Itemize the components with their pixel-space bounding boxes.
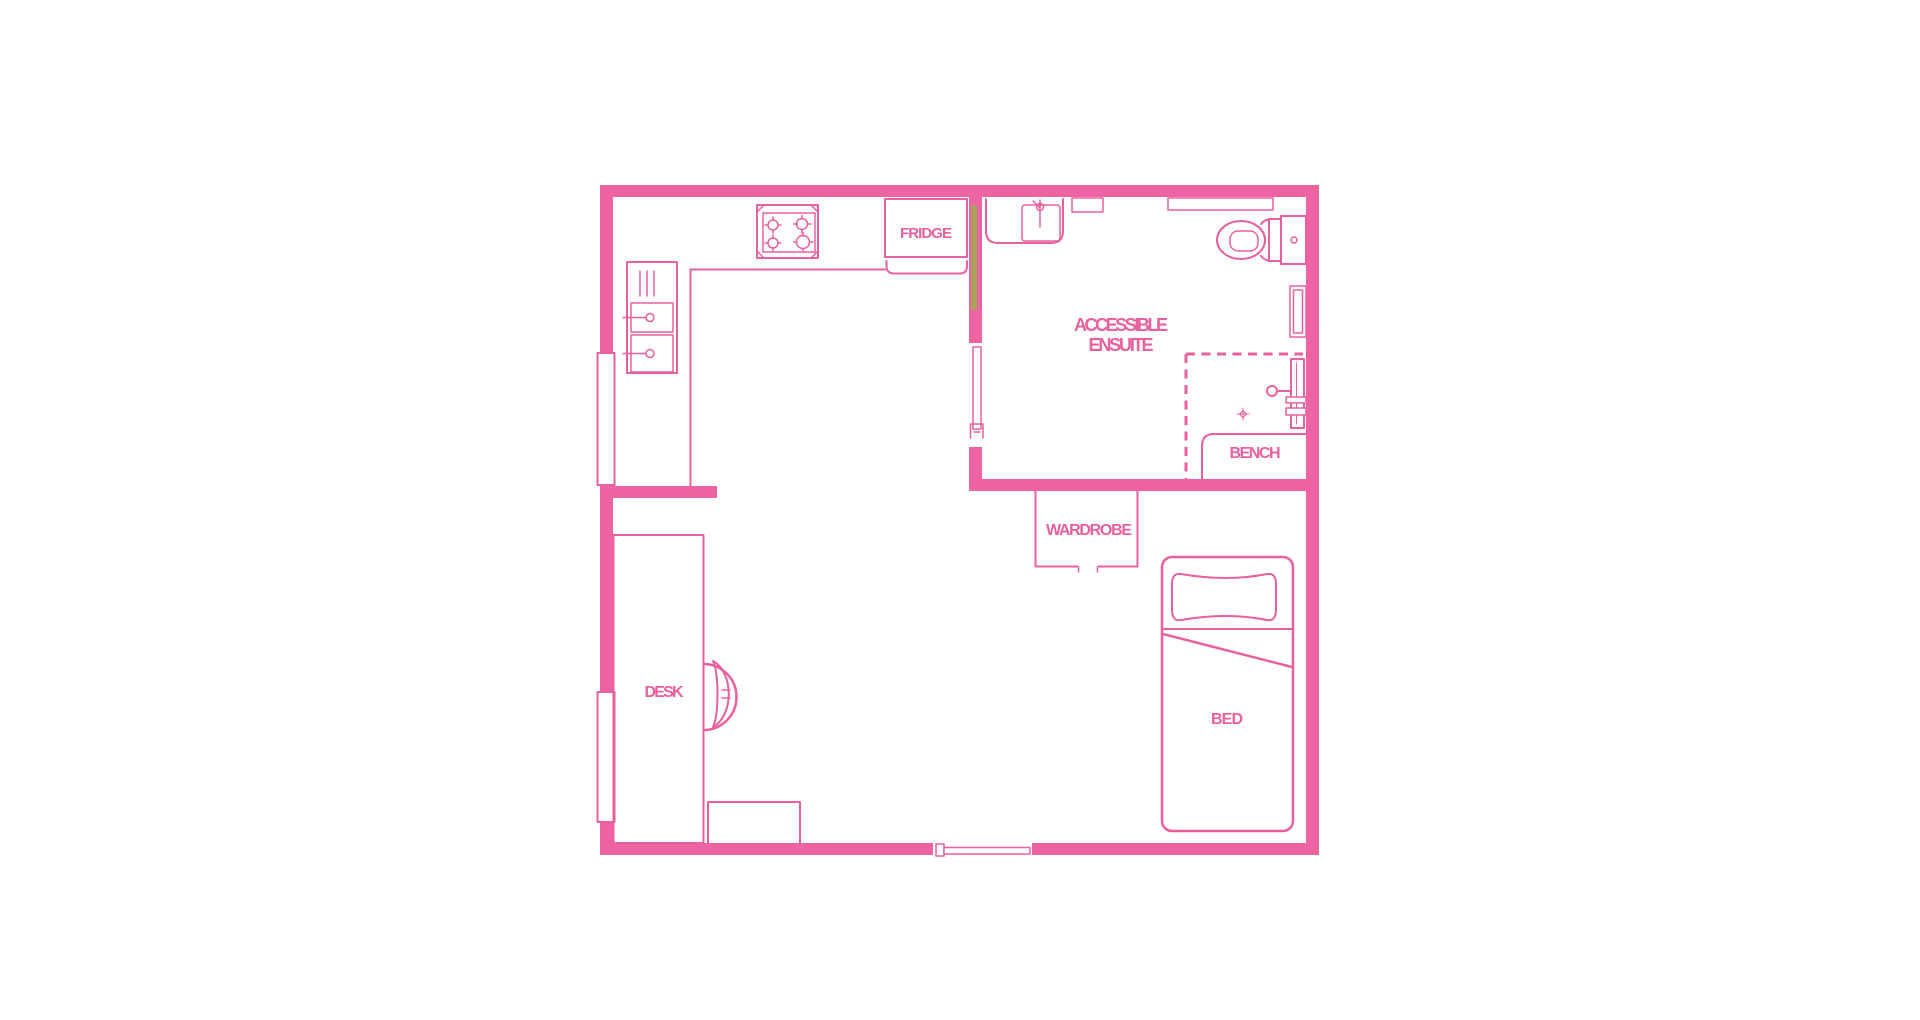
chair-icon xyxy=(704,661,737,730)
wall-kitchen-stub xyxy=(600,486,717,498)
side-table-icon xyxy=(708,802,800,843)
toilet-icon xyxy=(1217,216,1306,264)
door-seal-strip-icon xyxy=(971,205,977,310)
wall-cabinet-icon xyxy=(1290,286,1306,337)
ensuite-label-line2: ENSUITE xyxy=(1089,335,1154,355)
wall-top xyxy=(600,185,1319,197)
pillow-icon xyxy=(1172,574,1276,620)
wall-right xyxy=(1306,185,1319,855)
plan-linework xyxy=(598,198,1307,856)
desk-label: DESK xyxy=(645,684,684,701)
kitchen-sink-icon xyxy=(623,262,677,373)
floor-plan: FRIDGE ACCESSIBLE ENSUITE BENCH WARDROBE… xyxy=(0,0,1920,1020)
wall-ensuite-floor xyxy=(969,479,1306,491)
shelf-long-icon xyxy=(1168,198,1273,210)
wall-bottom-right-segment xyxy=(1032,843,1319,855)
stove-icon xyxy=(757,205,818,258)
fridge-label: FRIDGE xyxy=(900,225,952,242)
labels: FRIDGE ACCESSIBLE ENSUITE BENCH WARDROBE… xyxy=(645,225,1281,728)
shelf-small-icon xyxy=(1072,198,1103,212)
window-icon-upper xyxy=(598,353,615,485)
kitchen-counter xyxy=(691,270,886,487)
wardrobe-label: WARDROBE xyxy=(1046,522,1132,539)
entrance-door-icon xyxy=(936,844,1030,856)
bed-icon xyxy=(1162,557,1293,831)
basin-icon xyxy=(986,199,1063,243)
bed-label: BED xyxy=(1211,711,1243,728)
ensuite-label-line1: ACCESSIBLE xyxy=(1074,315,1168,335)
walls xyxy=(600,185,1319,855)
bench-label: BENCH xyxy=(1230,445,1281,462)
floor-drain-icon xyxy=(1237,408,1249,420)
window-icon-lower xyxy=(598,692,615,822)
shower-icon xyxy=(1267,359,1306,428)
ensuite-door-icon xyxy=(971,347,984,438)
wall-bottom-left-segment xyxy=(600,843,933,855)
